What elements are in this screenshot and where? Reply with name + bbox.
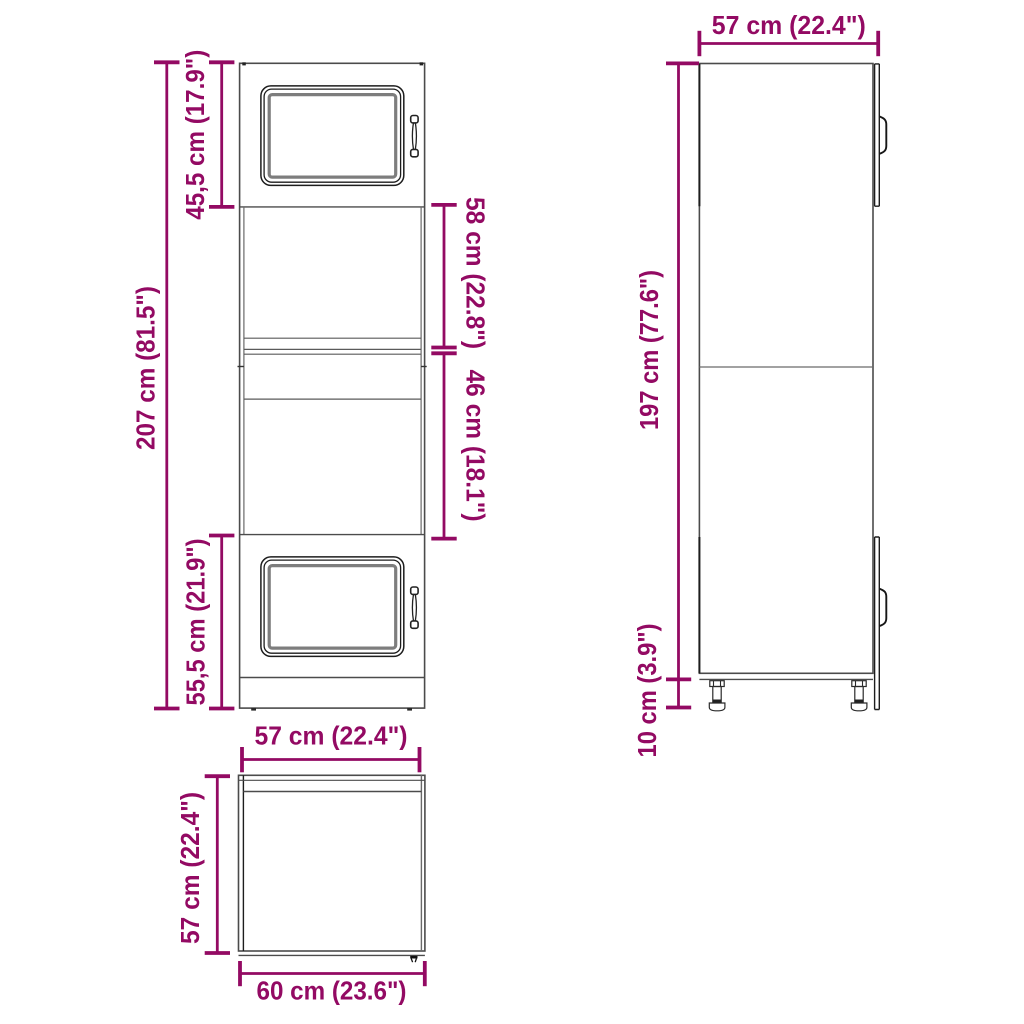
svg-text:57 cm (22.4"): 57 cm (22.4") [255, 721, 408, 751]
svg-text:55,5 cm (21.9"): 55,5 cm (21.9") [181, 539, 211, 706]
svg-text:60 cm (23.6"): 60 cm (23.6") [257, 976, 407, 1006]
svg-text:46 cm (18.1"): 46 cm (18.1") [461, 370, 491, 522]
svg-text:58 cm (22.8"): 58 cm (22.8") [461, 197, 491, 349]
svg-text:57 cm (22.4"): 57 cm (22.4") [175, 792, 205, 944]
svg-text:197 cm (77.6"): 197 cm (77.6") [634, 270, 664, 430]
svg-text:10 cm (3.9"): 10 cm (3.9") [632, 624, 662, 758]
svg-text:45,5 cm (17.9"): 45,5 cm (17.9") [180, 50, 210, 220]
svg-text:57 cm (22.4"): 57 cm (22.4") [712, 10, 866, 40]
svg-text:207 cm (81.5"): 207 cm (81.5") [131, 286, 161, 450]
